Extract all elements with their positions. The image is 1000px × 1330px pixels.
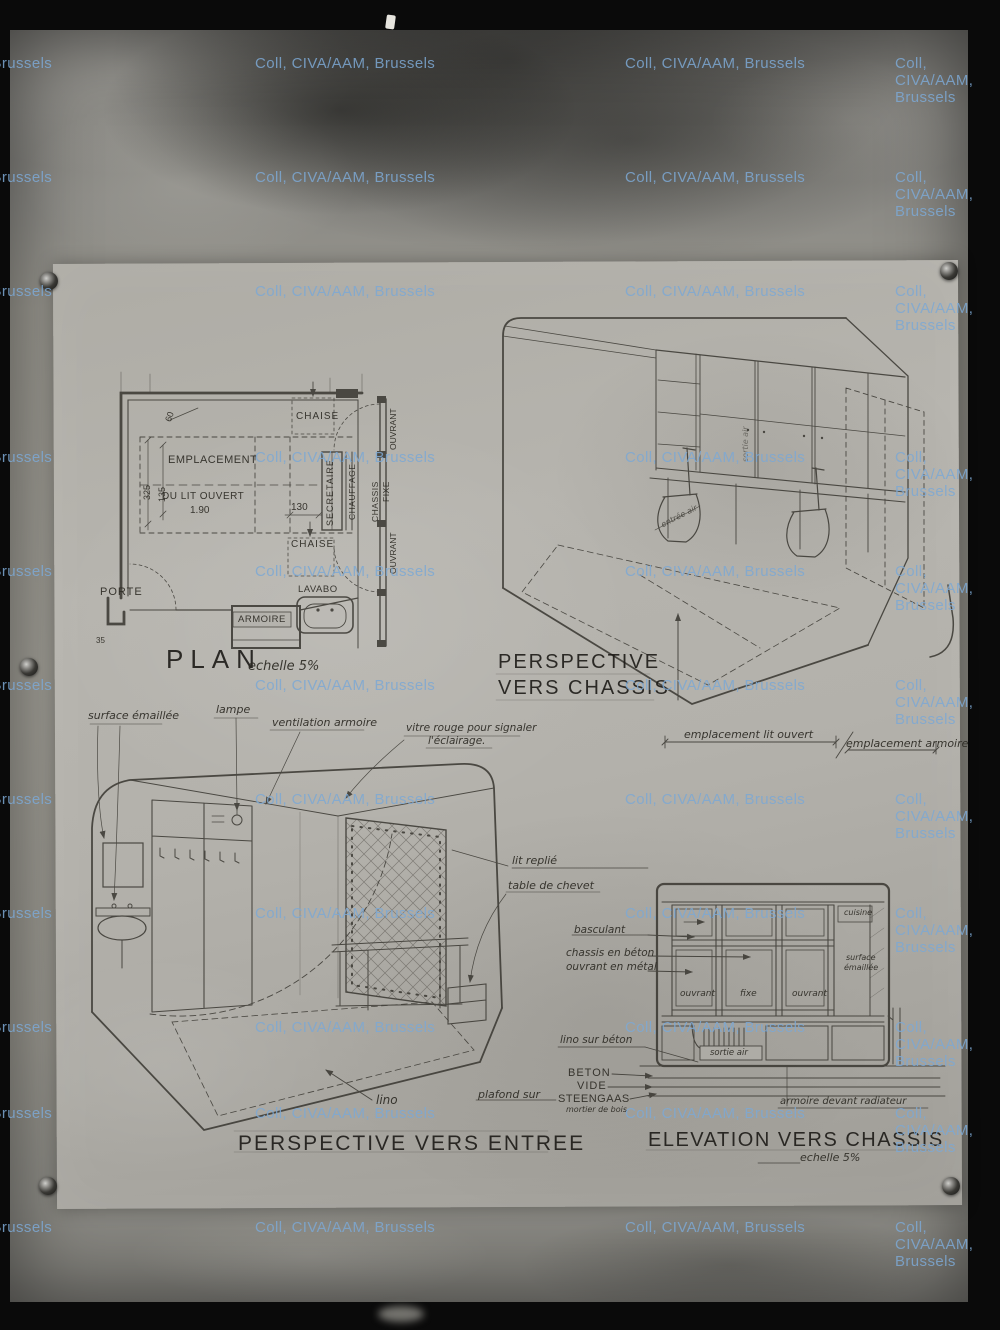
perspective-chassis-label-emplacement-lit: emplacement lit ouvert: [684, 729, 813, 740]
perspective-entree-label-vitre-rouge-line1: vitre rouge pour signaler: [406, 723, 536, 734]
elevation-label-surface-line2: émaillée: [844, 964, 878, 972]
perspective-entree-label-lino: lino: [376, 1094, 398, 1106]
elevation-label-basculant: basculant: [574, 925, 625, 936]
plan-dim-190: 1.90: [190, 506, 209, 516]
plan-label-chaise-top: CHAISE: [296, 412, 339, 422]
elevation-label-plafond-sur: plafond sur: [478, 1089, 540, 1100]
plan-label-fixe: FIXE: [382, 481, 391, 502]
perspective-entree-label-vitre-rouge-line2: l'éclairage.: [428, 736, 486, 747]
plan-label-chauffage: CHAUFFAGE: [348, 464, 357, 520]
elevation-label-lino-beton: lino sur béton: [560, 1035, 632, 1046]
film-smudge: [378, 1306, 424, 1322]
plan-dim-135: 135: [158, 487, 167, 502]
plan-label-armoire: ARMOIRE: [238, 615, 286, 625]
perspective-chassis-label-emplacement-armoire: emplacement armoire: [846, 738, 968, 749]
elevation-label-steengaas: STEENGAAS: [558, 1094, 630, 1105]
plan-label-ouvrant-bottom: OUVRANT: [389, 532, 398, 574]
elevation-linework: [476, 884, 945, 1163]
elevation-label-surface-line1: surface: [846, 954, 876, 962]
perspective-chassis-label-sortie-air: sortie air: [742, 426, 750, 462]
plan-label-lavabo: LAVABO: [298, 585, 338, 595]
elevation-label-sortie-air: sortie air: [710, 1049, 748, 1058]
elevation-label-vide: VIDE: [577, 1081, 607, 1092]
plan-label-chassis: CHASSIS: [371, 481, 380, 522]
perspective-entree-title: PERSPECTIVE VERS ENTREE: [238, 1133, 585, 1154]
plan-linework: [108, 372, 386, 648]
snap-fastener-bottom-right: [942, 1177, 960, 1195]
perspective-entree-label-surface-emaillee: surface émaillée: [88, 710, 179, 721]
elevation-label-chassis-beton: chassis en béton: [566, 948, 654, 959]
perspective-chassis-title-line2: VERS CHASSIS: [498, 678, 670, 698]
elevation-label-beton: BETON: [568, 1068, 611, 1079]
perspective-entree-label-table-chevet: table de chevet: [508, 880, 594, 891]
plan-label-du-lit-ouvert: DU LIT OUVERT: [162, 492, 244, 502]
elevation-label-ouvrant-right: ouvrant: [792, 990, 827, 999]
perspective-chassis-title-line1: PERSPECTIVE: [498, 652, 660, 672]
snap-fastener-mid-left: [20, 658, 38, 676]
plan-label-chaise-bottom: CHAISE: [291, 540, 334, 550]
perspective-entree-label-ventilation-armoire: ventilation armoire: [272, 717, 377, 728]
plan-scale: echelle 5%: [248, 660, 319, 673]
plan-label-porte: PORTE: [100, 587, 143, 598]
elevation-scale: echelle 5%: [800, 1152, 860, 1163]
snap-fastener-top-right: [940, 262, 958, 280]
plan-dim-130: 130: [291, 503, 308, 513]
snap-fastener-bottom-left: [39, 1177, 57, 1195]
perspective-entree-linework: [90, 718, 648, 1152]
snap-fastener-top-left: [40, 272, 58, 290]
elevation-label-armoire-radiateur: armoire devant radiateur: [780, 1097, 906, 1107]
photo-frame: CHAISE EMPLACEMENT DU LIT OUVERT 1.90 32…: [0, 0, 1000, 1330]
plan-dim-35: 35: [96, 637, 105, 645]
elevation-label-fixe: fixe: [740, 990, 757, 999]
elevation-label-cuisine: cuisine: [844, 909, 872, 917]
elevation-label-ouvrant-metal: ouvrant en métal: [566, 962, 657, 973]
perspective-entree-label-lampe: lampe: [216, 704, 250, 715]
plan-label-secretaire: SECRETAIRE: [326, 459, 335, 526]
elevation-title: ELEVATION VERS CHASSIS: [648, 1130, 944, 1150]
plan-dim-325: 325: [143, 485, 152, 500]
film-edge-mark: [385, 14, 396, 29]
elevation-label-mortier: mortier de bois: [566, 1106, 627, 1114]
perspective-entree-label-lit-replie: lit replié: [512, 855, 557, 866]
elevation-label-ouvrant-left: ouvrant: [680, 990, 715, 999]
plan-label-emplacement: EMPLACEMENT: [168, 455, 257, 466]
plan-label-ouvrant-top: OUVRANT: [389, 408, 398, 450]
